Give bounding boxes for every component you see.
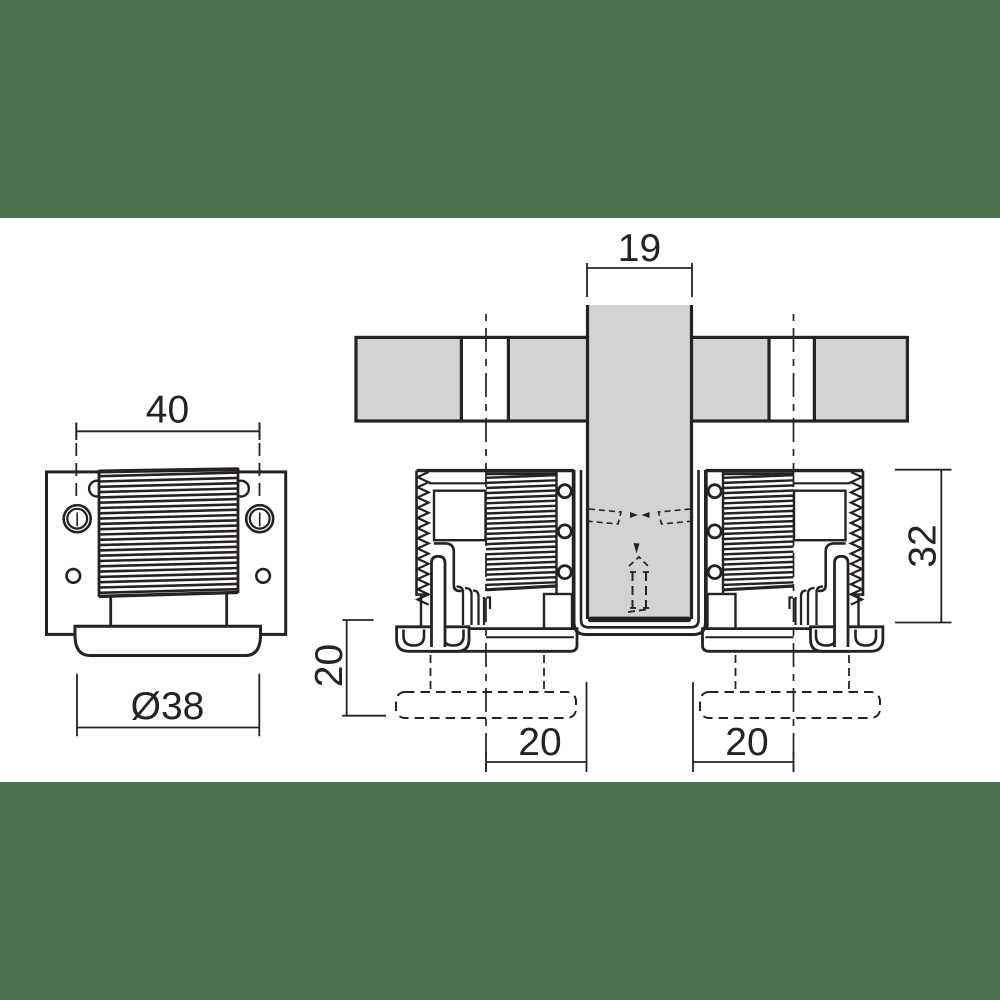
svg-text:Ø38: Ø38	[131, 685, 205, 728]
svg-text:20: 20	[518, 721, 561, 764]
svg-text:20: 20	[308, 644, 351, 687]
svg-text:19: 19	[618, 227, 661, 270]
svg-text:32: 32	[902, 524, 945, 567]
svg-text:20: 20	[725, 721, 768, 764]
svg-text:40: 40	[146, 389, 189, 432]
